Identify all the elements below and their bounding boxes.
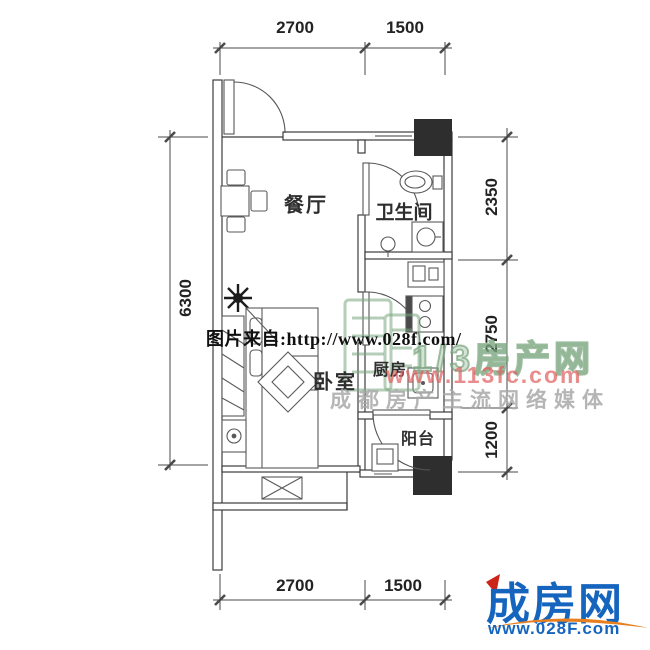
dim-right-1200: 1200 xyxy=(482,421,502,459)
site-logo-url: www.028F.com xyxy=(488,619,620,639)
dim-top-1500: 1500 xyxy=(386,18,424,38)
kitchen-cabinet-icon xyxy=(408,262,444,287)
entry-door-arc xyxy=(234,82,285,133)
bay-window-icon xyxy=(262,477,302,499)
inner-wall xyxy=(358,215,365,292)
room-label-balcony: 阳台 xyxy=(401,425,435,449)
entry-door-leaf xyxy=(224,80,234,134)
washing-machine-icon xyxy=(372,444,398,474)
dining-table-icon xyxy=(221,186,249,216)
floorplan-canvas: 餐厅 卫生间 卧室 厨房 阳台 2700 1500 2700 1500 6300… xyxy=(0,0,650,650)
inner-wall xyxy=(358,140,365,153)
dim-right-2350: 2350 xyxy=(482,178,502,216)
bay-bottom-wall xyxy=(213,503,347,510)
dim-left-6300: 6300 xyxy=(176,279,196,317)
dim-bottom-2700: 2700 xyxy=(276,576,314,596)
dim-top-2700: 2700 xyxy=(276,18,314,38)
bath-kitchen-wall xyxy=(365,252,452,259)
watermark-source-line: 图片来自:http://www.028f.com/ xyxy=(206,325,461,351)
site-logo: 成房网 www.028F.com xyxy=(478,566,650,650)
dining-chair-icon xyxy=(227,217,245,232)
bathroom-door-leaf xyxy=(363,163,369,215)
dining-chair-icon xyxy=(227,170,245,185)
column-top-right xyxy=(414,119,452,156)
dining-chair-icon xyxy=(251,191,267,211)
nightstand-icon xyxy=(222,420,246,452)
bathroom-sink-icon xyxy=(412,222,443,252)
room-label-bathroom: 卫生间 xyxy=(375,198,432,225)
toilet-icon xyxy=(400,171,442,193)
watermark-gray-slogan: 成都房产主流网络媒体 xyxy=(330,384,610,414)
dim-bottom-1500: 1500 xyxy=(384,576,422,596)
column-bottom-right xyxy=(413,456,452,495)
room-label-dining: 餐厅 xyxy=(284,189,328,218)
